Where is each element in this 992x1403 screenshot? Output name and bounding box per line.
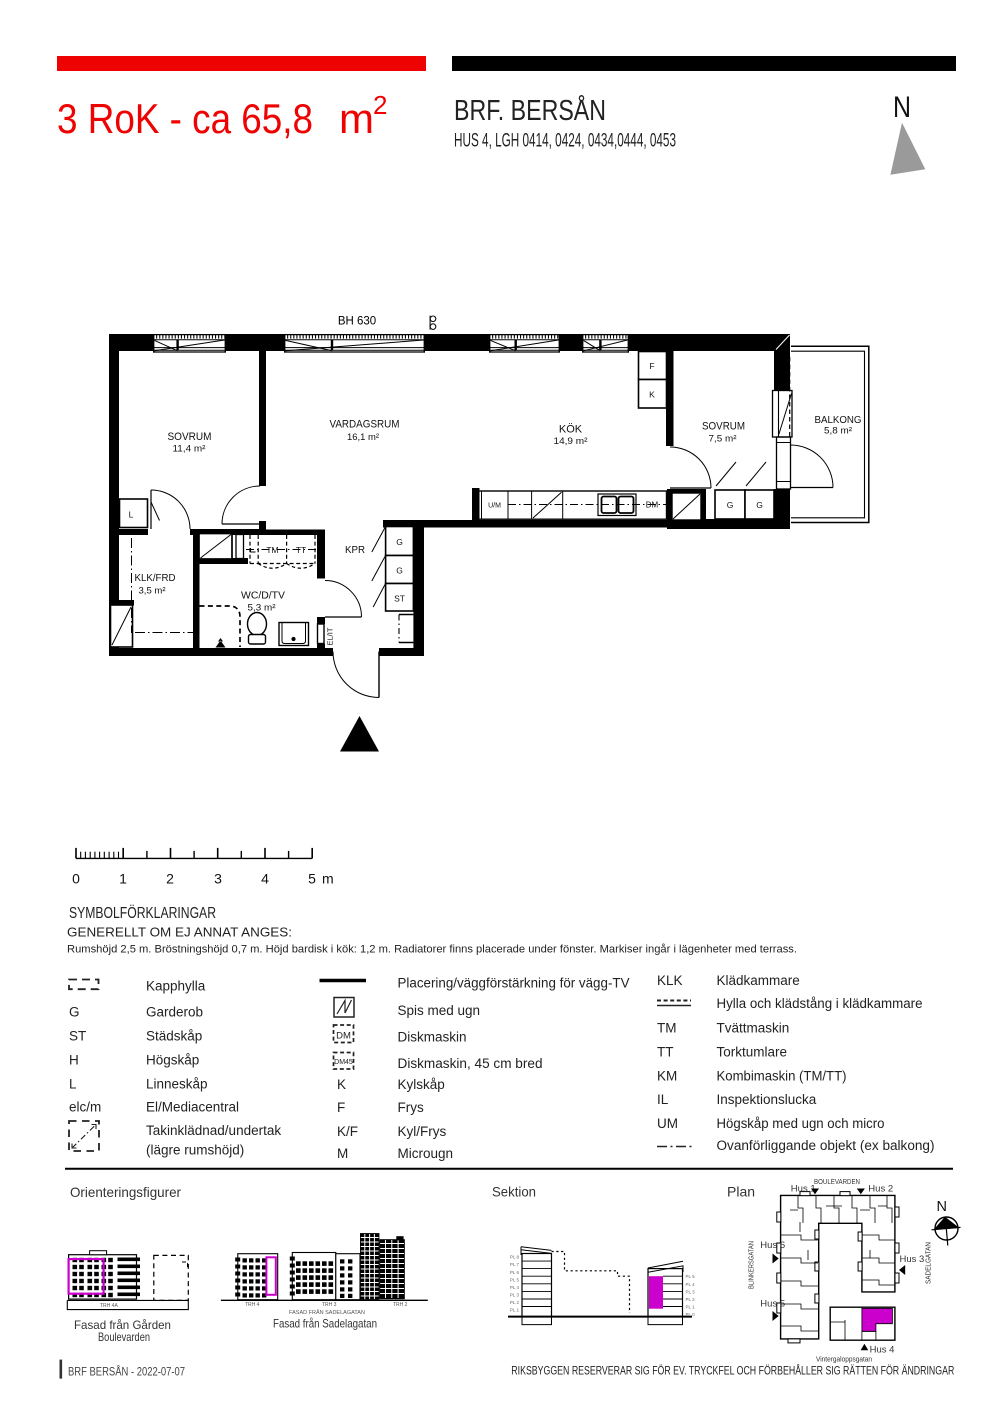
svg-text:L: L — [69, 1077, 77, 1092]
svg-text:G: G — [69, 1005, 80, 1020]
svg-text:m: m — [322, 871, 334, 887]
svg-text:PL 2: PL 2 — [510, 1300, 520, 1305]
svg-text:DM: DM — [336, 1031, 351, 1042]
svg-text:Fasad från Sadelagatan: Fasad från Sadelagatan — [273, 1317, 377, 1331]
svg-text:PL 6: PL 6 — [510, 1270, 520, 1275]
svg-text:16,1 m²: 16,1 m² — [347, 432, 379, 443]
svg-text:Frys: Frys — [398, 1100, 424, 1115]
svg-text:KM: KM — [657, 1069, 677, 1084]
svg-text:1: 1 — [119, 871, 127, 887]
svg-text:PL 7: PL 7 — [510, 1262, 520, 1267]
svg-text:PL 2: PL 2 — [686, 1297, 696, 1302]
svg-text:K: K — [337, 1077, 346, 1092]
svg-text:HUS 4, LGH 0414, 0424, 0434,04: HUS 4, LGH 0414, 0424, 0434,0444, 0453 — [454, 131, 676, 152]
svg-text:PL 5: PL 5 — [686, 1274, 696, 1279]
svg-text:Diskmaskin, 45 cm bred: Diskmaskin, 45 cm bred — [398, 1056, 543, 1071]
svg-text:Boulevarden: Boulevarden — [98, 1330, 150, 1344]
svg-text:Rumshöjd 2,5 m. Bröstningshöjd: Rumshöjd 2,5 m. Bröstningshöjd 0,7 m. Hö… — [67, 944, 797, 956]
svg-text:SOVRUM: SOVRUM — [168, 431, 212, 443]
svg-text:IL: IL — [657, 1092, 669, 1107]
svg-text:ST: ST — [69, 1029, 86, 1044]
svg-text:PL 8: PL 8 — [510, 1255, 520, 1260]
svg-text:4: 4 — [261, 871, 269, 887]
svg-text:Placering/väggförstärkning för: Placering/väggförstärkning för vägg-TV — [398, 976, 630, 991]
svg-text:WC/D/TV: WC/D/TV — [241, 590, 285, 602]
svg-text:Högskåp med ugn och micro: Högskåp med ugn och micro — [717, 1116, 885, 1131]
svg-text:TRH 2: TRH 2 — [393, 1302, 408, 1308]
svg-text:FASAD FRÅN SADELAGATAN: FASAD FRÅN SADELAGATAN — [289, 1309, 365, 1316]
svg-text:G: G — [727, 500, 734, 510]
svg-text:UM: UM — [657, 1116, 678, 1131]
svg-text:G: G — [756, 500, 763, 510]
svg-text:TM: TM — [657, 1021, 677, 1036]
svg-text:Kapphylla: Kapphylla — [146, 979, 206, 994]
svg-text:BH 630: BH 630 — [338, 316, 376, 328]
svg-text:BALKONG: BALKONG — [815, 414, 862, 426]
svg-text:ST: ST — [394, 594, 405, 604]
svg-text:Högskåp: Högskåp — [146, 1053, 199, 1068]
svg-text:TT: TT — [657, 1045, 674, 1060]
svg-text:BOULEVARDEN: BOULEVARDEN — [814, 1177, 860, 1186]
svg-text:PL 4: PL 4 — [510, 1285, 520, 1290]
svg-text:PL 3: PL 3 — [510, 1293, 520, 1298]
svg-text:U/M: U/M — [488, 503, 501, 510]
svg-text:5: 5 — [308, 871, 316, 887]
svg-text:Klädkammare: Klädkammare — [717, 973, 800, 988]
svg-text:elc/m: elc/m — [69, 1100, 101, 1115]
svg-text:L: L — [129, 510, 134, 520]
svg-text:Plan: Plan — [727, 1184, 755, 1200]
svg-text:3: 3 — [214, 871, 222, 887]
svg-text:m: m — [339, 95, 374, 142]
svg-text:3,5 m²: 3,5 m² — [139, 586, 166, 597]
svg-text:Torktumlare: Torktumlare — [717, 1045, 788, 1060]
svg-text:Kylskåp: Kylskåp — [398, 1077, 445, 1092]
svg-text:SADELGATAN: SADELGATAN — [924, 1242, 933, 1284]
svg-text:TT: TT — [296, 545, 306, 555]
svg-text:Hus 2: Hus 2 — [868, 1184, 893, 1195]
svg-text:PL 4: PL 4 — [686, 1282, 696, 1287]
svg-text:BRF BERSÅN - 2022-07-07: BRF BERSÅN - 2022-07-07 — [68, 1366, 185, 1379]
svg-text:VARDAGSRUM: VARDAGSRUM — [330, 419, 400, 431]
svg-text:Orienteringsfigurer: Orienteringsfigurer — [70, 1184, 181, 1200]
svg-text:RIKSBYGGEN RESERVERAR SIG FÖR: RIKSBYGGEN RESERVERAR SIG FÖR EV. TRYCKF… — [511, 1365, 954, 1378]
svg-text:El/Mediacentral: El/Mediacentral — [146, 1100, 239, 1115]
svg-text:BRF. BERSÅN: BRF. BERSÅN — [454, 94, 606, 127]
svg-text:G: G — [396, 537, 403, 547]
svg-text:EL/IT: EL/IT — [326, 627, 335, 645]
svg-text:3 RoK - ca 65,8: 3 RoK - ca 65,8 — [57, 95, 313, 142]
svg-text:2: 2 — [373, 90, 387, 120]
svg-text:5,8 m²: 5,8 m² — [824, 426, 852, 437]
svg-text:KÖK: KÖK — [559, 424, 583, 436]
svg-text:Microugn: Microugn — [398, 1146, 454, 1161]
svg-text:Vintergaloppsgatan: Vintergaloppsgatan — [816, 1355, 872, 1364]
svg-text:DM45: DM45 — [334, 1059, 353, 1066]
svg-text:KLK: KLK — [657, 973, 683, 988]
svg-text:PL 1: PL 1 — [686, 1305, 696, 1310]
svg-text:11,4 m²: 11,4 m² — [173, 444, 206, 455]
svg-text:Takinklädnad/undertak: Takinklädnad/undertak — [146, 1123, 281, 1138]
svg-text:DM: DM — [646, 501, 659, 510]
svg-text:SOVRUM: SOVRUM — [702, 421, 745, 433]
svg-text:Ovanförliggande objekt (ex ba: Ovanförliggande objekt (ex balkong) — [717, 1138, 935, 1153]
svg-text:K: K — [649, 390, 655, 400]
svg-text:GENERELLT OM EJ ANNAT ANGES:: GENERELLT OM EJ ANNAT ANGES: — [67, 926, 292, 940]
svg-text:Hylla och klädstång i klädkamm: Hylla och klädstång i klädkammare — [717, 996, 923, 1011]
svg-text:Garderob: Garderob — [146, 1005, 203, 1020]
svg-text:Diskmaskin: Diskmaskin — [398, 1030, 467, 1045]
svg-text:Tvättmaskin: Tvättmaskin — [717, 1021, 790, 1036]
svg-text:Städskåp: Städskåp — [146, 1029, 202, 1044]
svg-text:N: N — [893, 91, 911, 124]
svg-text:Linneskåp: Linneskåp — [146, 1077, 208, 1092]
svg-text:G: G — [396, 566, 403, 576]
svg-text:M: M — [337, 1146, 348, 1161]
svg-text:TRH 4: TRH 4 — [245, 1302, 260, 1308]
svg-text:Hus 5: Hus 5 — [760, 1299, 785, 1310]
svg-text:PL 5: PL 5 — [510, 1277, 520, 1282]
svg-text:F: F — [649, 361, 654, 371]
svg-text:Kombimaskin (TM/TT): Kombimaskin (TM/TT) — [717, 1069, 847, 1084]
svg-text:KLK/FRD: KLK/FRD — [135, 572, 176, 584]
svg-text:TRH 3: TRH 3 — [322, 1302, 337, 1308]
svg-text:Inspektionslucka: Inspektionslucka — [717, 1092, 817, 1107]
svg-text:2: 2 — [166, 871, 174, 887]
svg-text:5,3 m²: 5,3 m² — [248, 603, 276, 614]
svg-text:(lägre rumshöjd): (lägre rumshöjd) — [146, 1143, 244, 1158]
svg-text:Spis med ugn: Spis med ugn — [398, 1003, 481, 1018]
svg-text:Hus 6: Hus 6 — [760, 1240, 785, 1251]
svg-text:N: N — [937, 1199, 947, 1215]
svg-text:Hus 3: Hus 3 — [900, 1254, 925, 1265]
svg-text:Sektion: Sektion — [492, 1184, 536, 1200]
svg-text:7,5 m²: 7,5 m² — [709, 434, 737, 445]
svg-text:PL 1: PL 1 — [510, 1308, 520, 1313]
svg-text:SYMBOLFÖRKLARINGAR: SYMBOLFÖRKLARINGAR — [69, 904, 216, 922]
svg-text:Hus 4: Hus 4 — [870, 1344, 895, 1355]
svg-text:0: 0 — [72, 871, 80, 887]
svg-text:TM: TM — [266, 545, 278, 555]
svg-text:BLINKERSGATAN: BLINKERSGATAN — [747, 1241, 756, 1289]
svg-text:PL 0: PL 0 — [686, 1312, 696, 1317]
svg-text:14,9 m²: 14,9 m² — [554, 436, 588, 447]
svg-text:KPR: KPR — [345, 544, 365, 556]
svg-text:K/F: K/F — [337, 1124, 358, 1139]
svg-text:TRH 4A: TRH 4A — [100, 1303, 118, 1309]
svg-text:Kyl/Frys: Kyl/Frys — [398, 1124, 447, 1139]
svg-text:H: H — [69, 1053, 79, 1068]
svg-text:F: F — [337, 1100, 345, 1115]
svg-text:PL 3: PL 3 — [686, 1289, 696, 1294]
